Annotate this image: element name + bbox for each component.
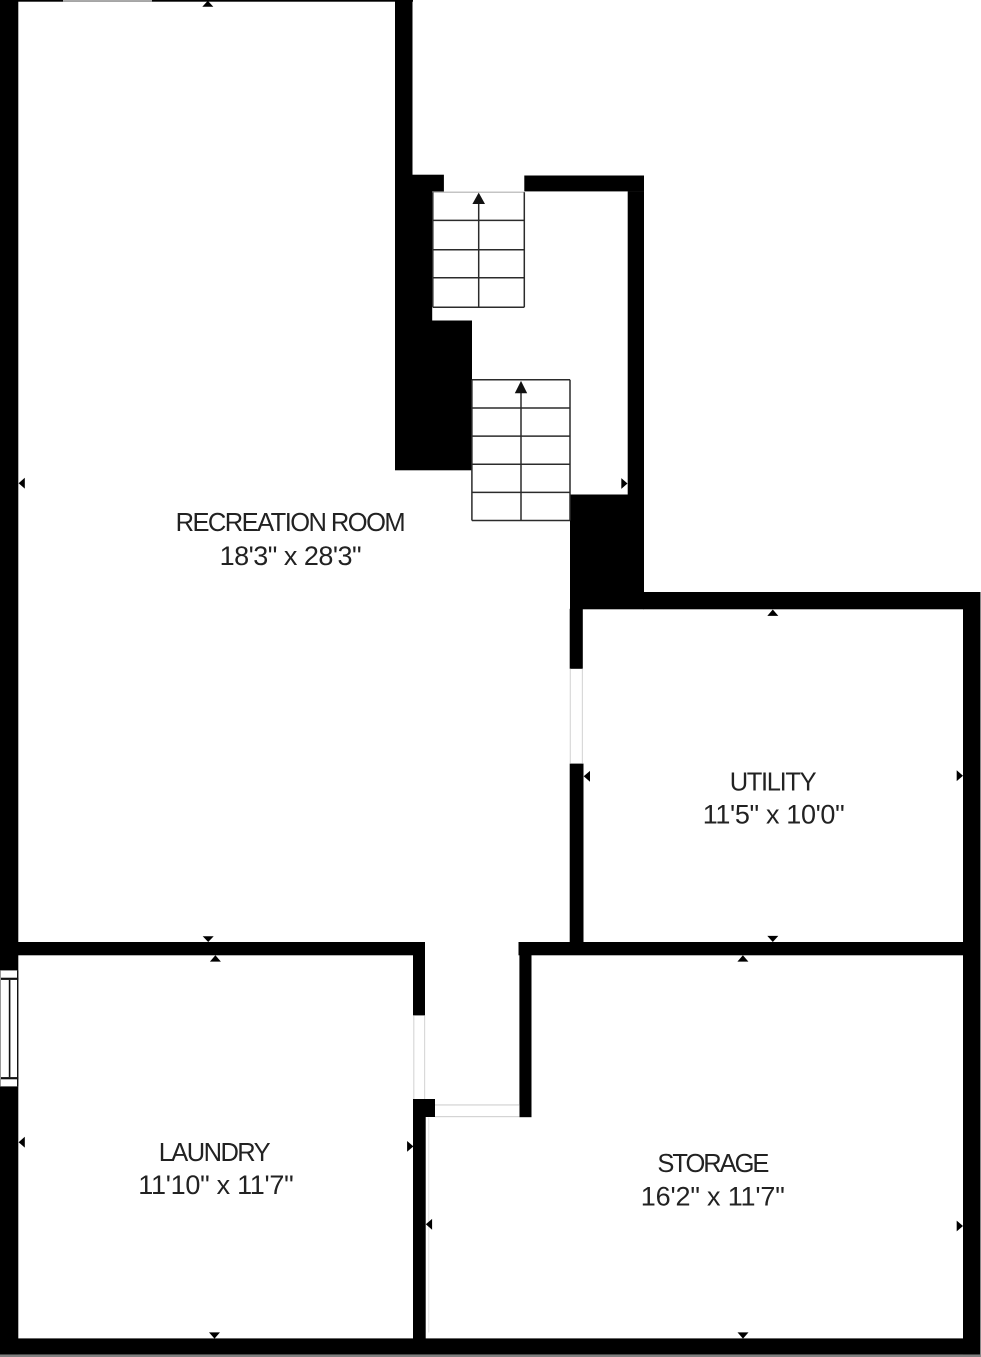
svg-text:LAUNDRY: LAUNDRY bbox=[159, 1139, 271, 1167]
svg-text:18'3" x 28'3": 18'3" x 28'3" bbox=[220, 541, 362, 571]
svg-text:UTILITY: UTILITY bbox=[730, 769, 817, 797]
svg-text:RECREATION ROOM: RECREATION ROOM bbox=[176, 509, 406, 537]
svg-text:STORAGE: STORAGE bbox=[657, 1150, 769, 1178]
svg-text:11'10" x 11'7": 11'10" x 11'7" bbox=[138, 1170, 294, 1200]
svg-text:11'5" x 10'0": 11'5" x 10'0" bbox=[703, 800, 845, 830]
svg-text:16'2" x 11'7": 16'2" x 11'7" bbox=[641, 1181, 785, 1211]
